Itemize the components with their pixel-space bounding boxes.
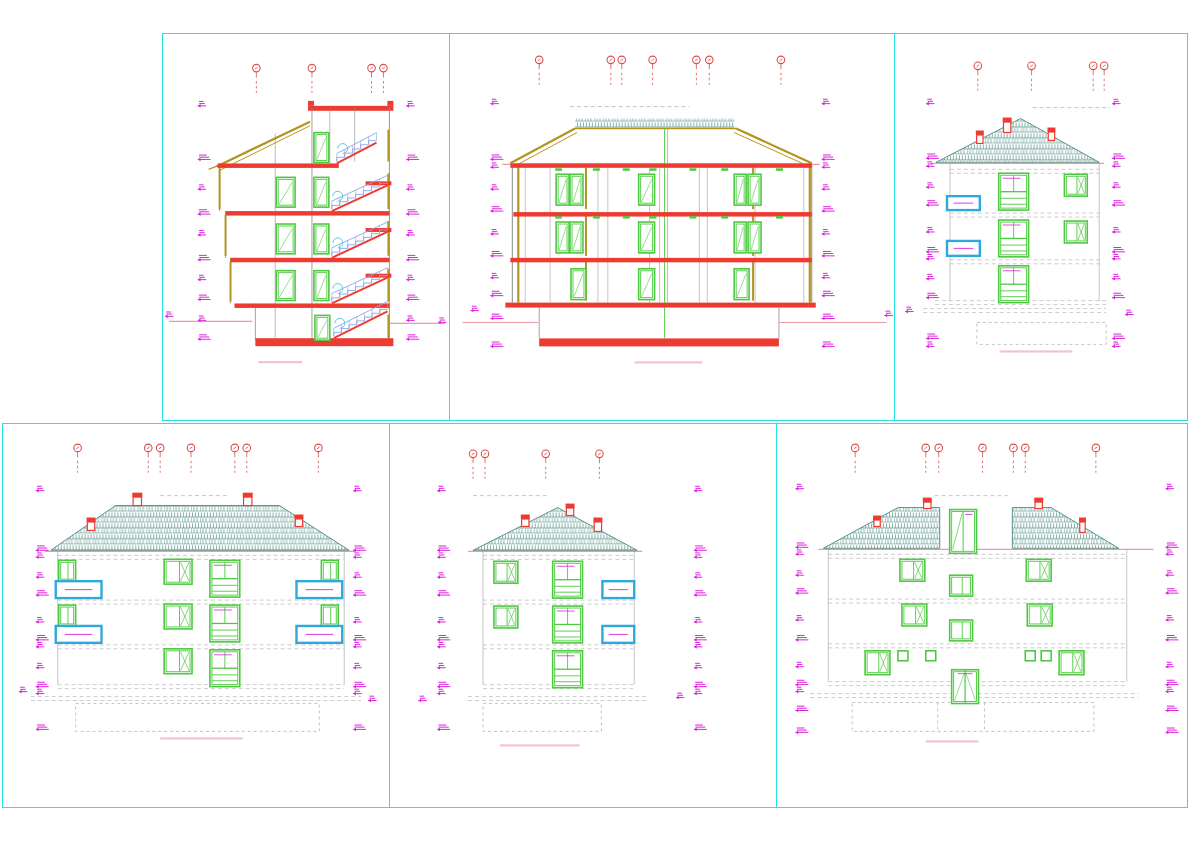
level-marker	[353, 546, 366, 552]
viewport-building-section-stairs	[162, 33, 450, 421]
level-marker	[822, 185, 830, 191]
window-door	[314, 224, 329, 254]
drawing-rect	[689, 216, 696, 218]
level-marker	[198, 295, 211, 301]
window-x	[1064, 174, 1087, 196]
title-ghost-text	[926, 740, 979, 742]
floor-slab	[218, 163, 339, 167]
grid-bubble	[144, 444, 152, 473]
drawing-rect	[650, 216, 657, 218]
window-big	[553, 606, 583, 643]
viewport-elevation-front	[2, 423, 390, 808]
window-door	[639, 174, 655, 205]
drawing-line	[736, 129, 812, 164]
grid-bubble	[243, 444, 251, 473]
level-marker	[406, 231, 414, 237]
level-marker	[1166, 616, 1174, 622]
level-marker	[694, 591, 707, 597]
window-door	[314, 177, 329, 207]
level-marker	[795, 706, 808, 712]
window-door	[314, 271, 329, 301]
grid-bubble	[156, 444, 164, 473]
level-marker	[1112, 99, 1120, 105]
level-marker	[198, 255, 211, 261]
grid-bubble	[231, 444, 239, 473]
drawing-rect	[308, 101, 314, 106]
tiled-roof	[936, 119, 1099, 163]
level-marker	[353, 573, 361, 579]
level-marker	[795, 662, 803, 668]
stair-flight	[332, 268, 388, 304]
level-marker	[1112, 274, 1120, 280]
window-pane	[950, 575, 973, 596]
drawing-rect	[776, 168, 783, 170]
level-marker	[926, 247, 939, 253]
drawing-rect	[721, 168, 728, 170]
window-dbl	[952, 670, 979, 704]
level-marker	[198, 155, 211, 161]
drawing-rect	[852, 703, 1094, 732]
level-marker	[694, 682, 707, 688]
level-marker	[406, 101, 414, 107]
drawing-rect	[776, 216, 783, 218]
title-ghost-text	[258, 361, 302, 363]
level-marker	[1166, 635, 1179, 641]
balcony-rail	[602, 581, 634, 598]
level-marker	[490, 155, 503, 161]
level-marker	[795, 550, 803, 556]
window-door	[748, 174, 761, 205]
level-marker	[490, 342, 503, 348]
level-marker	[1112, 154, 1125, 160]
level-marker	[36, 573, 44, 579]
grid-bubble	[542, 450, 550, 479]
level-marker	[490, 185, 498, 191]
level-marker	[926, 154, 939, 160]
level-marker	[1166, 706, 1179, 712]
level-marker	[490, 251, 503, 257]
level-marker	[822, 163, 830, 169]
window-pane	[950, 620, 973, 641]
chimney	[1047, 128, 1055, 141]
level-marker	[353, 682, 366, 688]
tiled-roof	[1012, 508, 1118, 549]
title-ghost-text	[160, 737, 243, 739]
level-marker	[795, 635, 808, 641]
drawing-rect	[650, 168, 657, 170]
balcony-rail	[947, 241, 980, 256]
grid-bubble	[368, 64, 376, 93]
window-door	[276, 271, 295, 301]
level-marker	[1112, 334, 1125, 340]
level-marker	[437, 573, 445, 579]
grid-bubble	[187, 444, 195, 473]
window-door	[276, 177, 295, 207]
level-marker	[406, 316, 414, 322]
drawing-elevation-rear	[777, 424, 1187, 807]
level-marker	[490, 273, 498, 279]
floor-slab	[510, 163, 811, 167]
grid-bubble	[693, 56, 701, 85]
chimney	[1003, 118, 1012, 133]
level-marker	[490, 163, 498, 169]
window-sq	[1025, 651, 1035, 661]
level-marker	[353, 591, 366, 597]
chimney	[1034, 498, 1043, 509]
level-marker	[36, 663, 44, 669]
level-marker	[1166, 543, 1179, 549]
level-marker	[1112, 293, 1125, 299]
level-marker	[1166, 680, 1179, 686]
drawing-elevation-side-left	[390, 424, 776, 807]
level-marker	[198, 231, 206, 237]
level-marker	[437, 682, 450, 688]
level-marker	[36, 682, 49, 688]
level-marker	[353, 689, 361, 695]
level-marker	[926, 99, 934, 105]
tiled-roof	[823, 508, 939, 549]
drawing-rect	[555, 216, 562, 218]
drawing-rect	[555, 168, 562, 170]
level-marker	[1112, 183, 1120, 189]
window-x	[494, 606, 518, 628]
level-marker	[437, 553, 445, 559]
window-door	[314, 133, 329, 163]
window-x	[1027, 604, 1052, 626]
roof-tile-strip	[575, 119, 734, 129]
title-ghost-text	[500, 744, 580, 746]
level-marker	[36, 618, 44, 624]
level-marker	[795, 687, 803, 693]
level-marker	[822, 230, 830, 236]
level-marker	[36, 591, 49, 597]
window-door	[315, 315, 330, 340]
level-marker	[437, 689, 445, 695]
window-door	[734, 174, 746, 205]
grid-bubble	[380, 64, 388, 93]
drawing-rect	[623, 168, 630, 170]
level-marker	[1166, 571, 1174, 577]
window-x	[1059, 651, 1084, 675]
grid-bubble	[1021, 444, 1029, 473]
level-marker	[926, 334, 939, 340]
level-marker	[694, 642, 702, 648]
drawing-rect	[593, 216, 600, 218]
level-marker	[676, 693, 684, 699]
grid-bubble	[1092, 444, 1100, 473]
level-marker	[926, 342, 934, 348]
window-tall	[950, 510, 977, 554]
level-marker	[406, 255, 419, 261]
level-marker	[795, 484, 803, 490]
level-marker	[36, 642, 44, 648]
level-marker	[1166, 728, 1179, 734]
drawing-rect	[977, 323, 1106, 345]
level-marker	[1112, 342, 1120, 348]
level-marker	[926, 254, 934, 260]
window-door	[734, 222, 746, 253]
level-marker	[353, 642, 361, 648]
level-marker	[36, 635, 49, 641]
drawing-line	[217, 122, 310, 167]
level-marker	[694, 618, 702, 624]
level-marker	[1112, 201, 1125, 207]
level-marker	[198, 210, 211, 216]
level-marker	[926, 183, 934, 189]
level-marker	[1112, 228, 1120, 234]
chimney	[923, 498, 932, 509]
level-marker	[884, 311, 892, 317]
balcony-rail	[947, 196, 980, 210]
chimney	[566, 504, 575, 516]
level-marker	[36, 689, 44, 695]
grid-bubble	[1089, 62, 1097, 91]
level-marker	[471, 306, 479, 312]
window-door	[748, 222, 761, 253]
window-x	[1064, 221, 1087, 243]
window-x	[164, 604, 192, 629]
window-big	[210, 560, 240, 597]
level-marker	[490, 291, 503, 297]
level-marker	[822, 207, 835, 213]
level-marker	[822, 342, 835, 348]
level-marker	[36, 553, 44, 559]
grid-bubble	[607, 56, 615, 85]
level-marker	[368, 696, 376, 702]
level-marker	[406, 275, 414, 281]
grid-bubble	[596, 450, 604, 479]
drawing-rect	[623, 216, 630, 218]
tiled-roof	[473, 508, 637, 551]
window-big	[553, 651, 583, 688]
chimney	[87, 518, 96, 531]
level-marker	[1125, 310, 1133, 316]
level-marker	[165, 312, 173, 318]
window-pane	[321, 560, 338, 581]
chimney	[1079, 518, 1086, 533]
drawing-line	[510, 129, 575, 164]
level-marker	[19, 687, 27, 693]
level-marker	[437, 663, 445, 669]
title-ghost-text	[1000, 350, 1073, 352]
balcony-rail	[602, 626, 634, 643]
window-x	[1026, 559, 1051, 581]
tiled-roof	[51, 506, 349, 551]
level-marker	[437, 591, 450, 597]
grid-bubble	[851, 444, 859, 473]
grid-bubble	[979, 444, 987, 473]
window-door	[570, 174, 583, 205]
grid-bubble	[618, 56, 626, 85]
level-marker	[1166, 589, 1179, 595]
level-marker	[353, 635, 366, 641]
level-marker	[926, 274, 934, 280]
level-marker	[795, 680, 808, 686]
window-big	[999, 220, 1029, 257]
grid-bubble	[1028, 62, 1036, 91]
chimney	[521, 515, 530, 527]
grid-bubble	[308, 64, 316, 93]
grid-bubble	[481, 450, 489, 479]
window-big	[999, 173, 1029, 210]
level-marker	[437, 546, 450, 552]
floor-slab	[513, 212, 811, 216]
viewport-elevation-rear	[777, 423, 1188, 808]
level-marker	[406, 210, 419, 216]
title-ghost-text	[635, 361, 703, 363]
level-marker	[353, 486, 361, 492]
level-marker	[437, 618, 445, 624]
window-door	[556, 174, 569, 205]
grid-bubble	[935, 444, 943, 473]
level-marker	[1112, 162, 1120, 168]
window-x	[900, 559, 925, 581]
level-marker	[822, 273, 830, 279]
drawing-elevation-front	[3, 424, 389, 807]
viewport-elevation-side-left	[390, 423, 777, 808]
chimney	[132, 493, 142, 506]
grid-bubble	[649, 56, 657, 85]
level-marker	[198, 101, 206, 107]
stair-flight	[337, 133, 377, 164]
window-door	[639, 269, 655, 300]
level-marker	[926, 293, 939, 299]
grid-bubble	[253, 64, 261, 93]
chimney	[243, 493, 253, 506]
level-marker	[406, 185, 414, 191]
window-door	[570, 222, 583, 253]
level-marker	[406, 335, 419, 341]
floor-slab	[539, 338, 779, 346]
level-marker	[406, 295, 419, 301]
level-marker	[694, 546, 707, 552]
level-marker	[198, 335, 211, 341]
drawing-building-section-longitudinal	[450, 34, 894, 420]
level-marker	[36, 725, 49, 731]
window-door	[571, 269, 586, 300]
level-marker	[353, 618, 361, 624]
drawing-rect	[593, 168, 600, 170]
drawing-rect	[721, 216, 728, 218]
level-marker	[437, 486, 445, 492]
drawing-sheet-canvas	[0, 0, 1191, 842]
window-door	[734, 269, 749, 300]
drawing-elevation-side-right	[895, 34, 1187, 420]
window-big	[210, 605, 240, 642]
grid-bubble	[974, 62, 982, 91]
balcony-rail	[296, 581, 342, 598]
floor-slab	[226, 211, 390, 215]
level-marker	[694, 663, 702, 669]
level-marker	[822, 314, 835, 320]
level-marker	[822, 99, 830, 105]
drawing-rect	[483, 704, 601, 732]
level-marker	[406, 155, 419, 161]
level-marker	[437, 725, 450, 731]
floor-slab	[308, 106, 393, 111]
grid-bubble	[1100, 62, 1108, 91]
window-pane	[321, 605, 338, 626]
window-door	[639, 222, 655, 253]
window-big	[553, 561, 583, 598]
level-marker	[36, 486, 44, 492]
viewport-elevation-side-right	[895, 33, 1188, 421]
level-marker	[437, 642, 445, 648]
level-marker	[490, 207, 503, 213]
window-big	[210, 650, 240, 687]
grid-bubble	[315, 444, 323, 473]
level-marker	[926, 228, 934, 234]
level-marker	[822, 291, 835, 297]
window-x	[865, 651, 890, 675]
level-marker	[822, 155, 835, 161]
level-marker	[198, 185, 206, 191]
floor-slab	[505, 303, 815, 308]
drawing-rect	[76, 704, 320, 732]
grid-bubble	[469, 450, 477, 479]
grid-bubble	[922, 444, 930, 473]
window-door	[276, 224, 295, 254]
drawing-rect	[689, 168, 696, 170]
level-marker	[490, 230, 498, 236]
grid-bubble	[706, 56, 714, 85]
level-marker	[1166, 550, 1174, 556]
level-marker	[353, 663, 361, 669]
window-door	[556, 222, 569, 253]
level-marker	[1112, 254, 1120, 260]
level-marker	[694, 573, 702, 579]
floor-slab	[231, 258, 390, 262]
level-marker	[694, 553, 702, 559]
chimney	[593, 518, 602, 532]
level-marker	[905, 307, 913, 313]
level-marker	[694, 689, 702, 695]
level-marker	[353, 725, 366, 731]
grid-bubble	[74, 444, 82, 473]
level-marker	[822, 251, 835, 257]
floor-slab	[510, 258, 811, 262]
level-marker	[1166, 484, 1174, 490]
chimney	[873, 516, 881, 527]
level-marker	[418, 696, 426, 702]
floor-slab	[235, 303, 390, 307]
level-marker	[353, 553, 361, 559]
chimney	[294, 515, 303, 527]
window-x	[164, 559, 192, 584]
stair-flight	[332, 222, 388, 258]
chimney	[976, 131, 984, 144]
level-marker	[437, 635, 450, 641]
level-marker	[1112, 247, 1125, 253]
window-sq	[898, 651, 908, 661]
window-x	[164, 649, 192, 674]
stair-flight	[332, 175, 388, 211]
level-marker	[490, 314, 503, 320]
level-marker	[1166, 687, 1174, 693]
level-marker	[926, 201, 939, 207]
window-big	[999, 266, 1029, 303]
drawing-line	[734, 132, 809, 166]
window-pane	[59, 605, 76, 626]
grid-bubble	[1010, 444, 1018, 473]
window-sq	[1041, 651, 1051, 661]
balcony-rail	[56, 626, 102, 643]
level-marker	[795, 728, 808, 734]
window-pane	[59, 560, 76, 581]
level-marker	[795, 616, 803, 622]
grid-bubble	[777, 56, 785, 85]
balcony-rail	[296, 626, 342, 643]
